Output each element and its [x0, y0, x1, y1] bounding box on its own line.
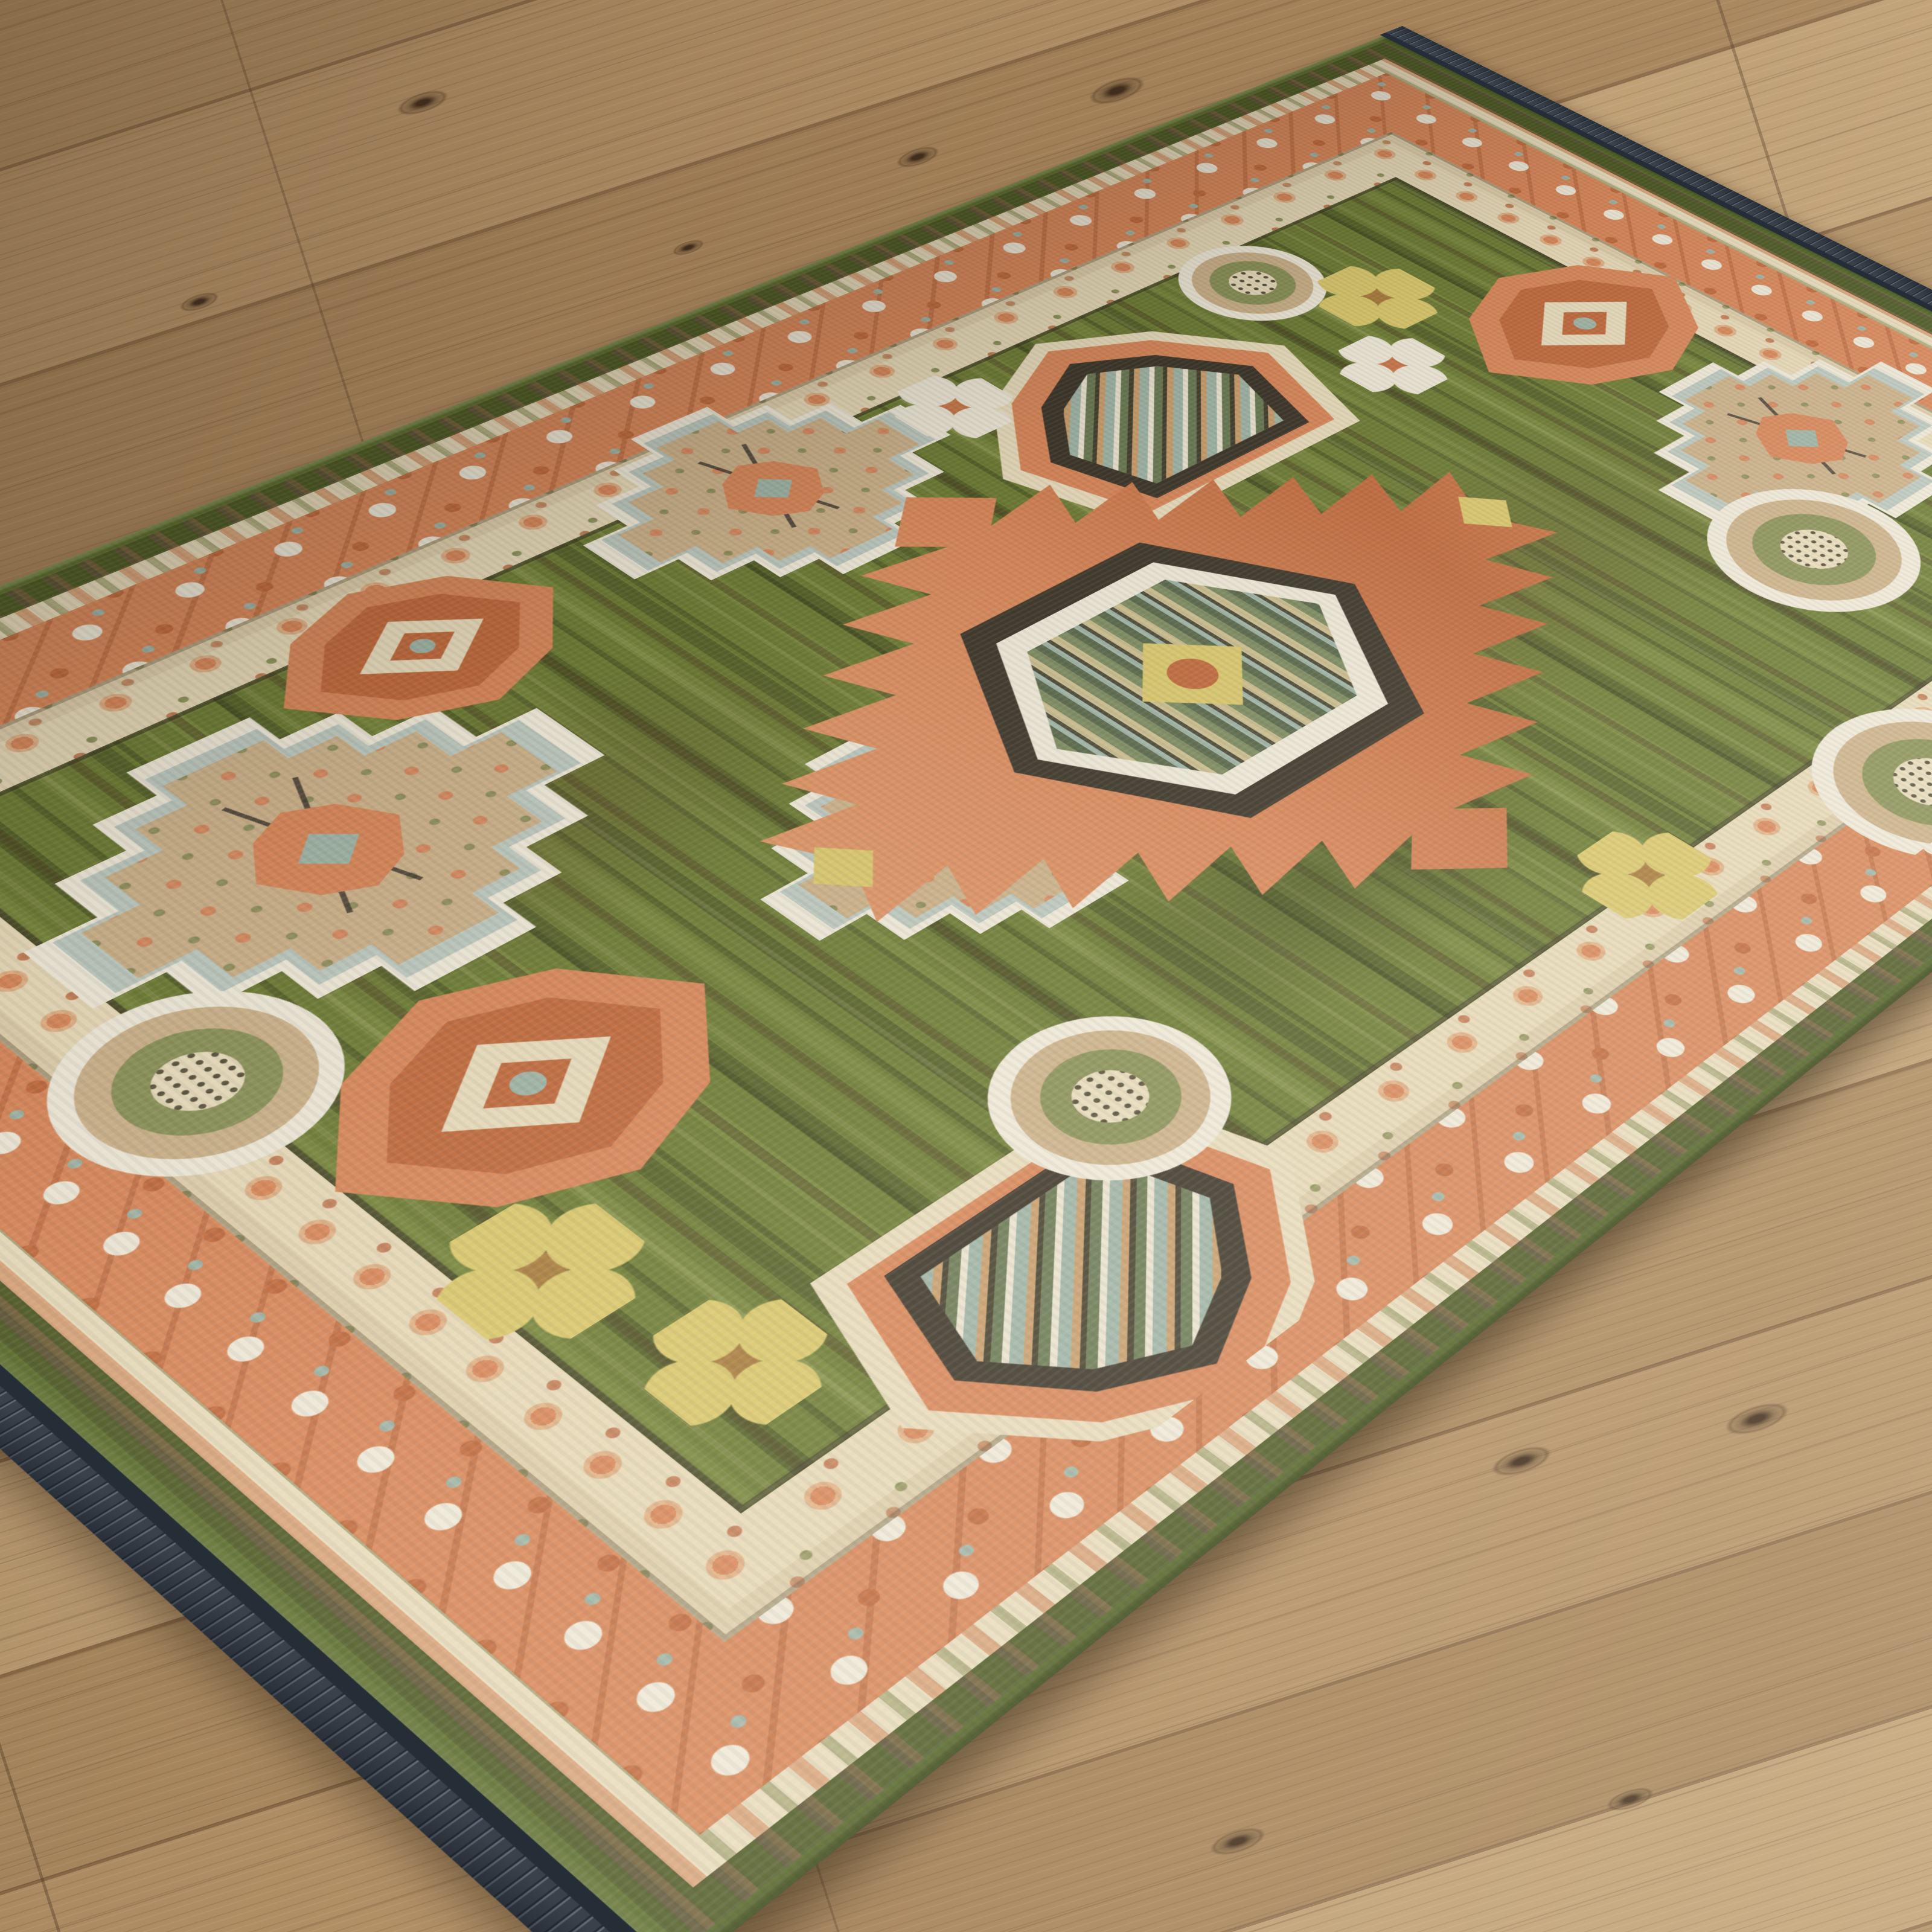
- scene: [0, 0, 1932, 1932]
- motif-rosette: [1763, 680, 1932, 892]
